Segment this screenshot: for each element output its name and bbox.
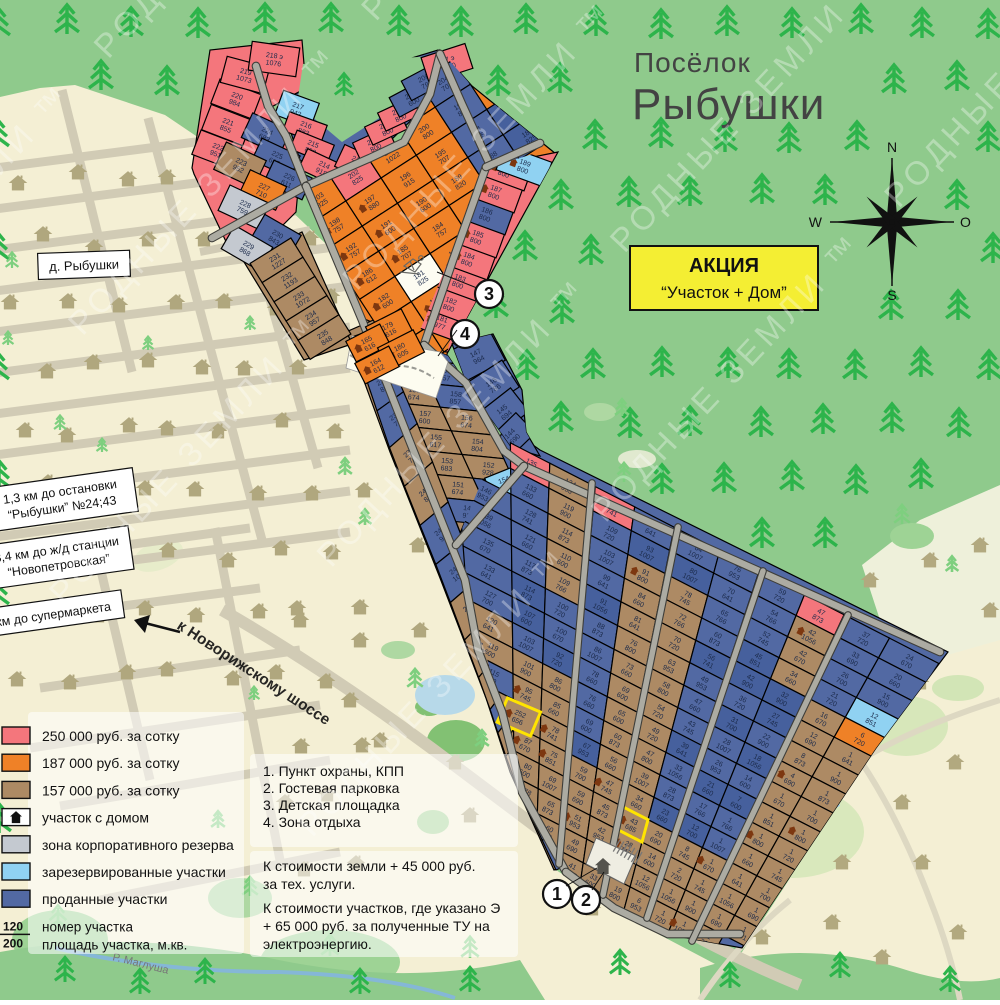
svg-text:157 000 руб. за сотку: 157 000 руб. за сотку	[42, 782, 180, 798]
svg-text:674: 674	[407, 394, 419, 402]
svg-text:2: 2	[581, 890, 591, 910]
svg-text:“Участок + Дом”: “Участок + Дом”	[661, 283, 787, 302]
svg-text:электроэнергию.: электроэнергию.	[263, 936, 372, 952]
svg-text:номер участка: номер участка	[42, 919, 133, 934]
svg-text:S: S	[887, 287, 896, 303]
svg-text:120: 120	[3, 919, 23, 933]
svg-text:804: 804	[471, 446, 483, 454]
svg-text:683: 683	[440, 465, 452, 473]
svg-text:АКЦИЯ: АКЦИЯ	[689, 255, 759, 277]
svg-text:674: 674	[451, 489, 463, 497]
svg-text:250 000 руб. за сотку: 250 000 руб. за сотку	[42, 728, 180, 744]
svg-text:площадь участка, м.кв.: площадь участка, м.кв.	[42, 937, 187, 952]
svg-text:1: 1	[552, 884, 562, 904]
svg-text:187 000 руб. за сотку: 187 000 руб. за сотку	[42, 755, 180, 771]
svg-text:200: 200	[3, 936, 23, 950]
svg-text:N: N	[887, 139, 897, 155]
svg-text:O: O	[960, 214, 971, 230]
svg-text:К стоимости земли + 45 000 руб: К стоимости земли + 45 000 руб.	[263, 858, 475, 874]
svg-text:за тех. услуги.: за тех. услуги.	[263, 876, 355, 892]
svg-text:К стоимости участков, где указ: К стоимости участков, где указано Э	[263, 900, 500, 916]
svg-text:зона корпоративного резерва: зона корпоративного резерва	[42, 837, 234, 853]
svg-text:зарезервированные участки: зарезервированные участки	[42, 864, 226, 880]
svg-text:Посёлок: Посёлок	[634, 47, 751, 78]
svg-text:3: 3	[484, 284, 494, 304]
svg-text:W: W	[809, 214, 823, 230]
svg-text:участок с домом: участок с домом	[42, 810, 149, 826]
svg-text:проданные участки: проданные участки	[42, 891, 167, 907]
svg-text:+ 65 000 руб. за полученные ТУ: + 65 000 руб. за полученные ТУ на	[263, 918, 490, 934]
svg-text:4: 4	[460, 324, 470, 344]
